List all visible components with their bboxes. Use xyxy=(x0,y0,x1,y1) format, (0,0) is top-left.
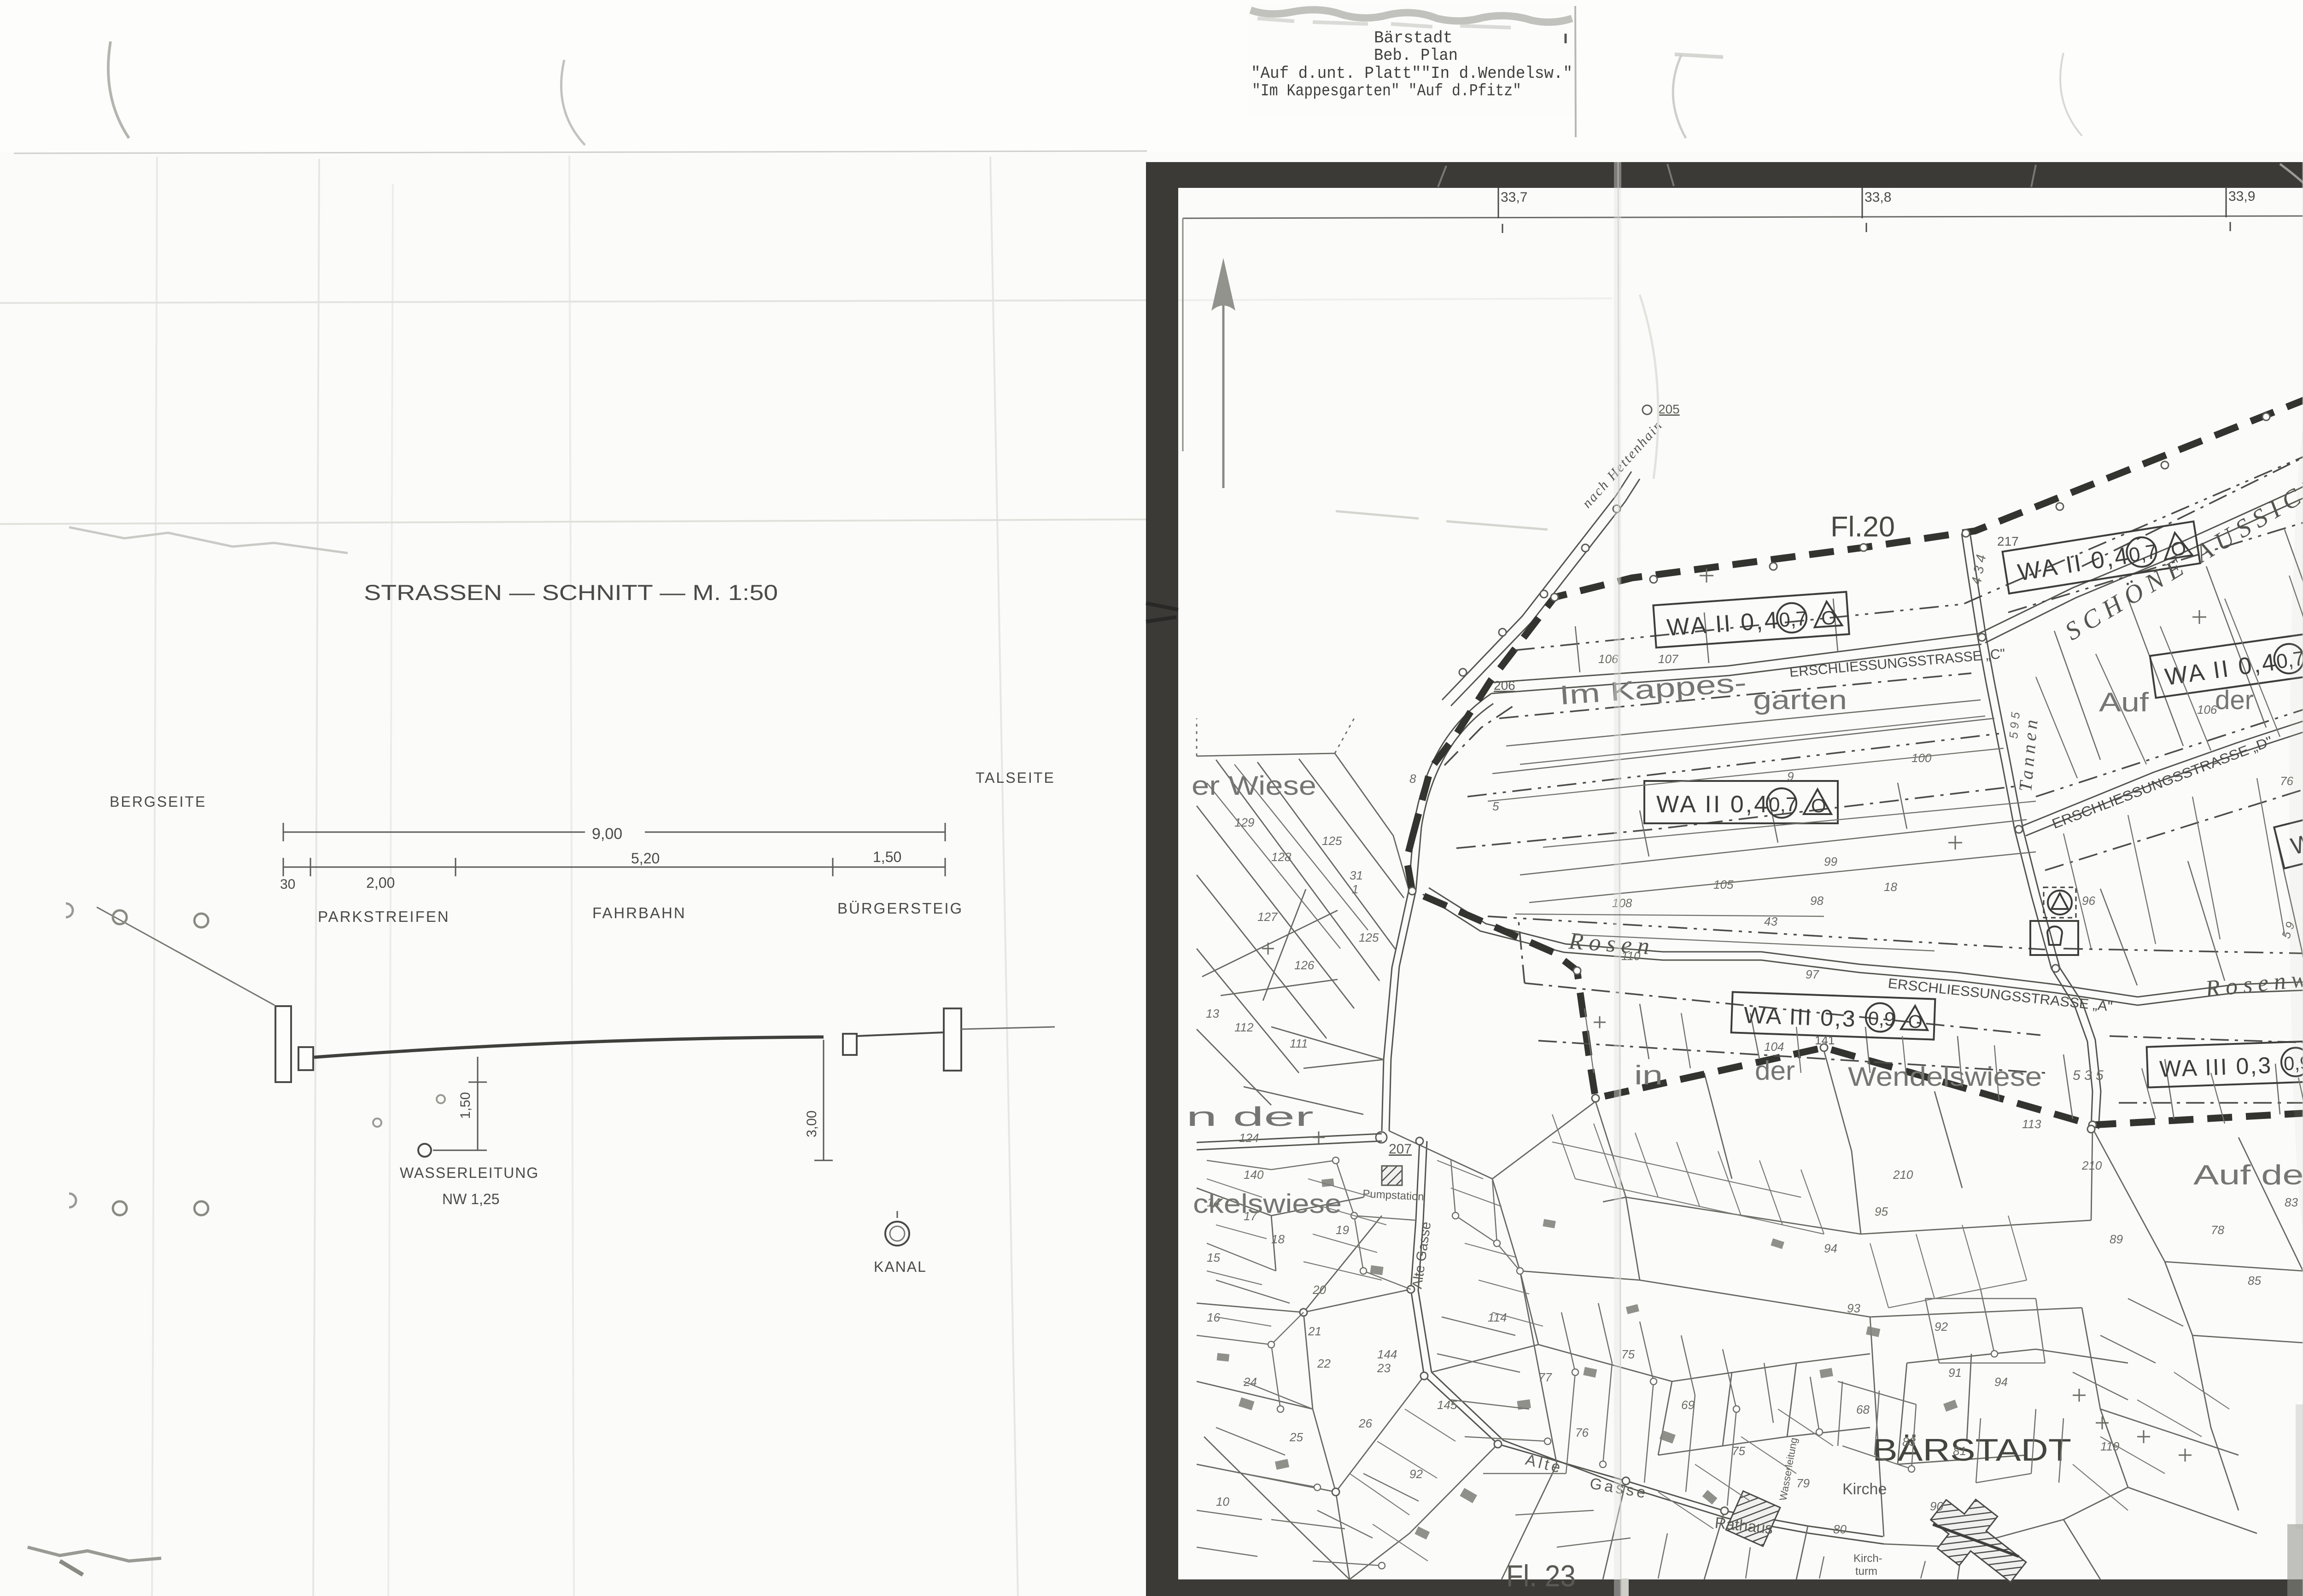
svg-text:205: 205 xyxy=(1658,402,1680,416)
svg-text:125: 125 xyxy=(1322,834,1342,848)
svg-text:105: 105 xyxy=(1713,878,1734,891)
svg-text:Kirch-: Kirch- xyxy=(1853,1552,1882,1565)
svg-text:der: der xyxy=(1755,1056,1795,1086)
svg-text:Auf der Pfitz: Auf der Pfitz xyxy=(2193,1159,2303,1190)
svg-text:92: 92 xyxy=(1409,1467,1423,1481)
svg-text:69: 69 xyxy=(1681,1398,1695,1412)
svg-text:75: 75 xyxy=(1732,1444,1745,1458)
svg-text:1,50: 1,50 xyxy=(458,1092,473,1119)
svg-text:33,7: 33,7 xyxy=(1501,190,1527,205)
svg-text:68: 68 xyxy=(1856,1403,1870,1416)
svg-text:FAHRBAHN: FAHRBAHN xyxy=(592,904,686,921)
svg-text:NW 1,25: NW 1,25 xyxy=(442,1191,499,1207)
svg-text:"Auf d.unt. Platt""In d.Wendel: "Auf d.unt. Platt""In d.Wendelsw." xyxy=(1251,64,1572,83)
svg-text:207: 207 xyxy=(1389,1142,1412,1157)
svg-text:144: 144 xyxy=(1377,1347,1397,1361)
svg-text:STRASSEN — SCHNITT — M. 1:50: STRASSEN — SCHNITT — M. 1:50 xyxy=(364,580,778,605)
svg-text:5 3 5: 5 3 5 xyxy=(2073,1068,2104,1083)
svg-text:30: 30 xyxy=(280,877,295,892)
svg-text:19: 19 xyxy=(1336,1223,1349,1237)
svg-text:206: 206 xyxy=(1494,678,1515,693)
svg-text:13: 13 xyxy=(1206,1007,1219,1020)
svg-text:210: 210 xyxy=(2081,1159,2102,1172)
svg-text:98: 98 xyxy=(1810,894,1824,908)
svg-text:17: 17 xyxy=(1244,1209,1257,1223)
svg-text:18: 18 xyxy=(1271,1232,1285,1246)
svg-text:78: 78 xyxy=(2211,1223,2224,1237)
svg-text:96: 96 xyxy=(2082,894,2095,908)
svg-text:0,9: 0,9 xyxy=(1868,1008,1895,1030)
svg-text:3,00: 3,00 xyxy=(804,1111,819,1137)
svg-text:217: 217 xyxy=(1997,534,2019,548)
svg-text:77: 77 xyxy=(1538,1370,1552,1384)
svg-text:90: 90 xyxy=(1930,1499,1943,1513)
svg-text:104: 104 xyxy=(1764,1040,1784,1054)
svg-text:O: O xyxy=(1811,795,1826,816)
svg-text:in: in xyxy=(1634,1060,1663,1090)
svg-text:9,00: 9,00 xyxy=(592,825,622,843)
svg-text:KANAL: KANAL xyxy=(874,1258,927,1275)
svg-text:22: 22 xyxy=(1317,1357,1331,1370)
svg-text:92: 92 xyxy=(1935,1320,1948,1334)
svg-text:der: der xyxy=(2215,685,2254,715)
svg-text:0,7: 0,7 xyxy=(1778,607,1808,631)
svg-text:128: 128 xyxy=(1271,850,1292,864)
svg-text:er Wiese: er Wiese xyxy=(1192,771,1316,801)
svg-text:85: 85 xyxy=(2248,1274,2261,1287)
svg-text:140: 140 xyxy=(1244,1168,1264,1182)
svg-text:20: 20 xyxy=(1312,1283,1326,1297)
svg-text:5: 5 xyxy=(1492,799,1499,813)
svg-text:Auf: Auf xyxy=(2099,687,2149,717)
svg-text:97: 97 xyxy=(1806,967,1819,981)
svg-text:8: 8 xyxy=(1409,772,1416,786)
svg-text:94: 94 xyxy=(1994,1375,2008,1389)
svg-text:10: 10 xyxy=(1216,1495,1229,1509)
svg-text:126: 126 xyxy=(1294,958,1315,972)
svg-text:5 9 5: 5 9 5 xyxy=(2006,711,2022,740)
svg-text:81: 81 xyxy=(1953,1444,1966,1458)
svg-text:99: 99 xyxy=(1824,855,1837,868)
svg-text:BÜRGERSTEIG: BÜRGERSTEIG xyxy=(837,900,963,917)
svg-text:WASSERLEITUNG: WASSERLEITUNG xyxy=(400,1165,539,1181)
svg-text:91: 91 xyxy=(1948,1366,1962,1380)
svg-text:124: 124 xyxy=(1239,1131,1259,1145)
svg-text:93: 93 xyxy=(1847,1301,1860,1315)
svg-text:76: 76 xyxy=(1575,1426,1589,1439)
svg-text:125: 125 xyxy=(1359,931,1379,944)
svg-text:113: 113 xyxy=(2022,1117,2041,1131)
svg-text:23: 23 xyxy=(1377,1361,1391,1375)
svg-text:5,20: 5,20 xyxy=(631,850,660,867)
svg-text:127: 127 xyxy=(1257,910,1278,924)
svg-text:31: 31 xyxy=(1350,868,1363,882)
svg-text:210: 210 xyxy=(1893,1168,1913,1182)
svg-text:9: 9 xyxy=(1787,769,1794,783)
svg-text:Fl.20: Fl.20 xyxy=(1830,511,1895,543)
svg-text:BERGSEITE: BERGSEITE xyxy=(110,793,206,810)
svg-text:0,7: 0,7 xyxy=(1769,793,1797,816)
svg-text:14: 14 xyxy=(1207,1195,1220,1209)
svg-text:0,7: 0,7 xyxy=(2127,540,2158,567)
svg-text:Beb. Plan: Beb. Plan xyxy=(1374,46,1458,65)
svg-text:129: 129 xyxy=(1234,815,1254,829)
svg-text:n der: n der xyxy=(1186,1102,1314,1132)
svg-text:43: 43 xyxy=(1764,914,1777,928)
svg-text:94: 94 xyxy=(1824,1241,1837,1255)
svg-text:Bärstadt: Bärstadt xyxy=(1374,29,1453,47)
svg-text:33,8: 33,8 xyxy=(1865,190,1891,205)
svg-text:21: 21 xyxy=(1308,1324,1321,1338)
svg-text:WA III 0,3: WA III 0,3 xyxy=(1743,1002,1857,1032)
svg-text:Kirche: Kirche xyxy=(1842,1480,1887,1498)
svg-text:PARKSTREIFEN: PARKSTREIFEN xyxy=(318,908,450,925)
svg-text:107: 107 xyxy=(1658,652,1679,666)
svg-text:114: 114 xyxy=(1488,1311,1507,1324)
svg-text:turm: turm xyxy=(1855,1565,1877,1578)
svg-text:25: 25 xyxy=(1289,1430,1303,1444)
svg-text:"Im Kappesgarten" "Auf d.Pfitz: "Im Kappesgarten" "Auf d.Pfitz" xyxy=(1252,82,1521,100)
svg-text:112: 112 xyxy=(1234,1020,1254,1034)
svg-text:Wendelswiese: Wendelswiese xyxy=(1848,1062,2042,1092)
svg-text:2,00: 2,00 xyxy=(366,874,395,891)
svg-text:80: 80 xyxy=(1833,1522,1847,1536)
svg-text:garten: garten xyxy=(1753,685,1847,715)
svg-text:75: 75 xyxy=(1621,1347,1635,1361)
svg-text:111: 111 xyxy=(1290,1037,1308,1050)
svg-text:26: 26 xyxy=(1358,1416,1372,1430)
svg-text:95: 95 xyxy=(1875,1205,1888,1218)
svg-text:18: 18 xyxy=(1884,880,1897,894)
svg-text:89: 89 xyxy=(2110,1232,2123,1246)
svg-text:79: 79 xyxy=(1796,1476,1810,1490)
svg-text:1: 1 xyxy=(1352,882,1358,896)
svg-text:110: 110 xyxy=(1621,949,1641,963)
svg-text:Fl. 23: Fl. 23 xyxy=(1506,1559,1576,1593)
svg-text:106: 106 xyxy=(2197,703,2217,716)
svg-text:WA II 0,4: WA II 0,4 xyxy=(1656,791,1769,818)
svg-text:O: O xyxy=(1821,606,1837,629)
svg-text:WA III 0,3: WA III 0,3 xyxy=(2159,1052,2273,1082)
svg-text:15: 15 xyxy=(1207,1251,1220,1264)
svg-text:O: O xyxy=(1908,1012,1923,1032)
svg-text:33,9: 33,9 xyxy=(2228,189,2255,204)
svg-text:83: 83 xyxy=(2285,1195,2298,1209)
svg-text:1,50: 1,50 xyxy=(873,849,901,865)
svg-text:TALSEITE: TALSEITE xyxy=(976,769,1055,786)
